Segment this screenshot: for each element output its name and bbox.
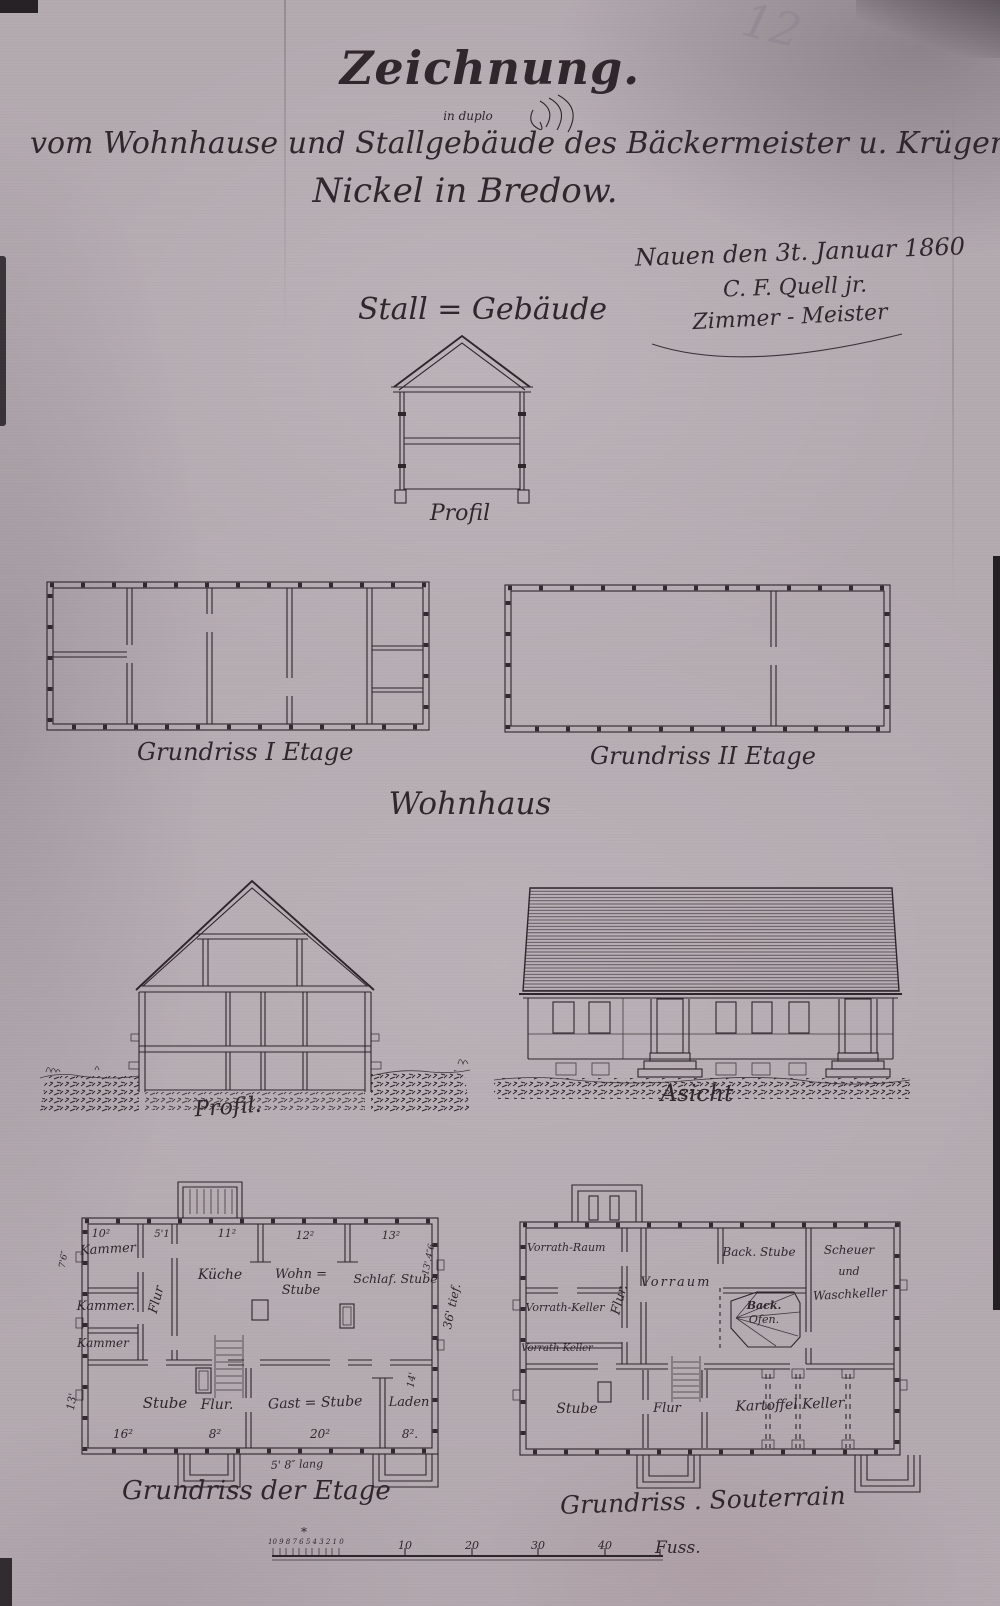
scale-star: * — [301, 1526, 315, 1539]
room-backofen-line1: Back. — [742, 1300, 786, 1312]
stall-plan-first-floor-drawing — [47, 582, 429, 730]
house-etage-plan-drawing — [76, 1182, 444, 1487]
room-waschkeller-line1: Scheuer — [809, 1244, 889, 1257]
room-vorrath-keller-2: Vorrath Keller — [517, 1344, 597, 1355]
room-backofen-line2: Ofen. — [742, 1314, 786, 1326]
room-vorrath-raum: Vorrath-Raum — [527, 1242, 605, 1254]
dim-top-schlafstube: 13² — [376, 1230, 406, 1242]
house-elevation-label: Asicht — [637, 1082, 757, 1106]
dim-top-wohnstube: 12² — [290, 1230, 320, 1242]
room-wohnstube-line2: Stube — [271, 1284, 331, 1298]
room-kammer-3: Kammer — [70, 1337, 136, 1350]
title-subtitle-line2: Nickel in Bredow. — [295, 174, 635, 210]
house-elevation-drawing — [494, 888, 910, 1099]
scale-tick-10: 10 — [395, 1540, 415, 1552]
dim-top-flur: 5'1 — [148, 1230, 176, 1241]
room-souterrain-flur-bottom: Flur — [642, 1402, 692, 1416]
title-subtitle-line1: vom Wohnhause und Stallgebäude des Bäcke… — [30, 128, 970, 160]
scale-minor-numbers: 10 9 8 7 6 5 4 3 2 1 0 — [268, 1539, 348, 1546]
room-vorraum: Vorraum — [640, 1276, 712, 1290]
dim-bottom-laden: 8². — [394, 1428, 426, 1441]
drawing-sheet: 12 Zeichnung. in duplo vom Wohnhause und… — [0, 0, 1000, 1606]
dim-top-kueche: 11² — [212, 1228, 242, 1240]
title-duplo-note: in duplo — [418, 110, 518, 123]
dim-top-kammer: 10² — [86, 1228, 116, 1240]
house-profil-drawing — [40, 881, 470, 1112]
room-stube: Stube — [135, 1396, 195, 1412]
scale-tick-20: 20 — [462, 1540, 482, 1552]
room-flur-bottom: Flur. — [192, 1398, 242, 1413]
room-waschkeller-line2: und — [809, 1266, 889, 1278]
stall-plan-second-label: Grundriss II Etage — [590, 744, 810, 769]
etage-plan-label: Grundriss der Etage — [122, 1478, 362, 1505]
house-heading: Wohnhaus — [370, 788, 570, 821]
room-souterrain-stube: Stube — [547, 1402, 607, 1417]
stall-plan-first-label: Grundriss I Etage — [137, 740, 347, 765]
scale-unit-label: Fuss. — [655, 1540, 725, 1558]
room-gaststube: Gast = Stube — [268, 1394, 358, 1412]
room-vorrath-keller: Vorrath-Keller — [524, 1302, 606, 1314]
scale-tick-40: 40 — [595, 1540, 615, 1552]
room-laden: Laden — [384, 1396, 434, 1410]
room-backstube: Back. Stube — [717, 1246, 801, 1259]
room-kammer-2: Kammer. — [73, 1300, 139, 1314]
room-kueche: Küche — [190, 1268, 250, 1283]
stall-profil-drawing — [391, 336, 533, 503]
stall-heading: Stall = Gebäude — [358, 294, 598, 326]
house-souterrain-plan-drawing — [513, 1185, 920, 1492]
dim-bottom-gaststube: 20² — [302, 1428, 338, 1441]
page-title: Zeichnung. — [330, 44, 650, 92]
dim-bottom-stube: 16² — [105, 1428, 141, 1441]
dim-bottom-flur: 8² — [200, 1428, 230, 1441]
stall-profil-label: Profil — [400, 502, 520, 525]
scale-tick-30: 30 — [528, 1540, 548, 1552]
signature-flourish — [652, 334, 902, 357]
room-wohnstube-line1: Wohn = — [271, 1268, 331, 1282]
stall-plan-second-floor-drawing — [505, 585, 890, 732]
